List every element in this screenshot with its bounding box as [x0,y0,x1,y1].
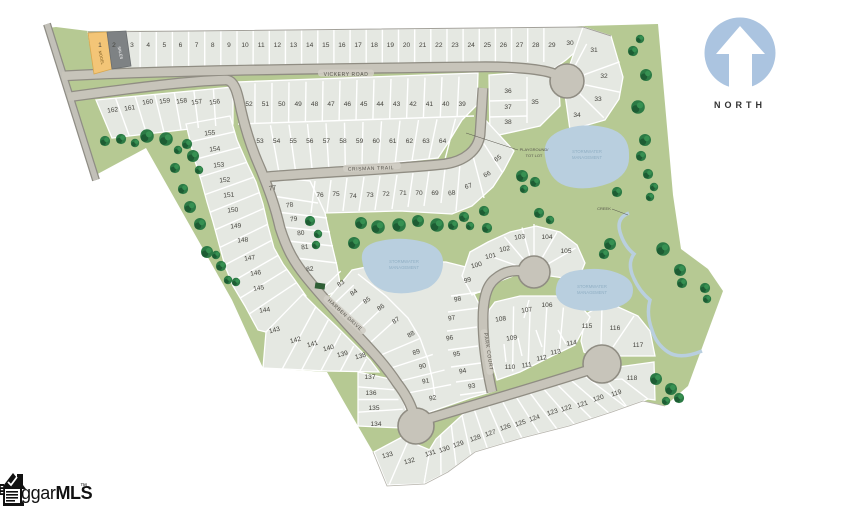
svg-text:110: 110 [505,364,516,371]
svg-text:23: 23 [451,42,459,49]
svg-text:NORTH: NORTH [714,100,766,110]
svg-text:137: 137 [364,374,375,381]
svg-text:53: 53 [256,138,264,145]
svg-text:154: 154 [209,146,221,154]
svg-text:STORMWATER: STORMWATER [572,149,602,154]
svg-text:59: 59 [356,138,364,145]
svg-text:11: 11 [258,42,265,49]
svg-text:76: 76 [316,192,324,199]
svg-text:57: 57 [323,138,331,145]
svg-text:26: 26 [500,42,508,49]
svg-text:58: 58 [339,138,347,145]
svg-text:PLAYGROUND/: PLAYGROUND/ [520,147,550,152]
svg-text:149: 149 [230,223,242,231]
svg-text:115: 115 [582,323,593,330]
svg-text:32: 32 [600,73,608,80]
svg-text:64: 64 [439,138,447,145]
svg-text:71: 71 [399,190,407,197]
svg-text:42: 42 [409,101,417,108]
svg-text:2: 2 [112,42,116,49]
svg-text:28: 28 [532,42,540,49]
svg-text:56: 56 [306,138,314,145]
svg-text:10: 10 [241,42,249,49]
svg-text:VICKERY ROAD: VICKERY ROAD [324,72,369,78]
svg-text:12: 12 [274,42,282,49]
svg-text:69: 69 [431,190,439,197]
svg-text:17: 17 [354,42,362,49]
svg-text:30: 30 [566,40,574,47]
svg-text:72: 72 [382,191,390,198]
svg-text:73: 73 [366,192,374,199]
svg-text:105: 105 [560,248,571,255]
svg-text:55: 55 [290,138,298,145]
svg-text:81: 81 [301,244,309,252]
svg-text:48: 48 [311,101,319,108]
svg-text:29: 29 [548,42,556,49]
svg-text:47: 47 [327,101,335,108]
svg-text:153: 153 [213,162,225,170]
svg-text:™: ™ [80,483,87,490]
svg-text:39: 39 [459,101,467,108]
svg-text:MANAGEMENT: MANAGEMENT [389,265,419,270]
svg-text:41: 41 [426,101,434,108]
svg-text:80: 80 [297,230,305,238]
svg-text:35: 35 [531,99,539,106]
svg-text:18: 18 [371,42,379,49]
svg-text:31: 31 [590,47,598,54]
svg-text:25: 25 [484,42,492,49]
svg-text:104: 104 [541,234,552,241]
svg-text:15: 15 [322,42,330,49]
svg-text:TOT LOT: TOT LOT [526,153,543,158]
svg-text:52: 52 [245,101,253,108]
svg-text:155: 155 [204,130,216,138]
svg-text:40: 40 [442,101,450,108]
svg-text:62: 62 [406,138,414,145]
svg-text:152: 152 [219,177,231,185]
svg-text:38: 38 [504,119,512,126]
svg-text:50: 50 [278,101,286,108]
svg-text:37: 37 [504,104,512,111]
svg-text:STORMWATER: STORMWATER [389,259,419,264]
svg-text:74: 74 [349,193,357,200]
svg-text:116: 116 [610,325,621,332]
svg-text:CREEK: CREEK [597,206,611,211]
svg-text:3: 3 [130,42,134,49]
svg-text:106: 106 [541,302,552,309]
svg-text:13: 13 [290,42,298,49]
svg-text:MANAGEMENT: MANAGEMENT [572,155,602,160]
svg-text:118: 118 [627,375,638,382]
svg-text:5: 5 [162,42,166,49]
svg-text:68: 68 [448,189,457,197]
svg-text:24: 24 [467,42,475,49]
svg-text:4: 4 [146,42,150,49]
svg-text:135: 135 [368,405,379,412]
svg-text:46: 46 [344,101,352,108]
svg-text:1: 1 [98,42,102,49]
svg-text:20: 20 [403,42,411,49]
svg-text:61: 61 [389,138,397,145]
svg-text:79: 79 [290,215,299,223]
svg-text:19: 19 [387,42,395,49]
svg-text:134: 134 [370,421,381,428]
svg-text:14: 14 [306,42,314,49]
svg-text:9: 9 [227,42,231,49]
svg-text:70: 70 [415,190,423,197]
svg-text:151: 151 [223,192,235,200]
svg-text:34: 34 [573,112,581,119]
svg-text:148: 148 [237,237,249,245]
svg-text:27: 27 [516,42,524,49]
svg-text:60: 60 [373,138,381,145]
svg-text:75: 75 [332,191,340,198]
svg-text:7: 7 [195,42,199,49]
svg-text:33: 33 [594,96,602,103]
svg-text:54: 54 [273,138,281,145]
svg-text:136: 136 [365,390,376,397]
svg-text:45: 45 [360,101,368,108]
svg-text:111: 111 [521,361,532,369]
svg-text:44: 44 [377,101,385,108]
svg-text:82: 82 [306,266,314,274]
svg-text:16: 16 [338,42,346,49]
svg-text:49: 49 [295,101,303,108]
svg-text:MANAGEMENT: MANAGEMENT [577,290,607,295]
svg-text:36: 36 [504,88,512,95]
svg-text:150: 150 [227,207,239,215]
svg-text:8: 8 [211,42,215,49]
svg-text:21: 21 [419,42,427,49]
svg-text:117: 117 [633,342,644,349]
svg-text:43: 43 [393,101,401,108]
svg-text:63: 63 [422,138,430,145]
svg-text:6: 6 [179,42,183,49]
svg-text:22: 22 [435,42,443,49]
svg-text:51: 51 [262,101,270,108]
svg-text:STORMWATER: STORMWATER [577,284,607,289]
